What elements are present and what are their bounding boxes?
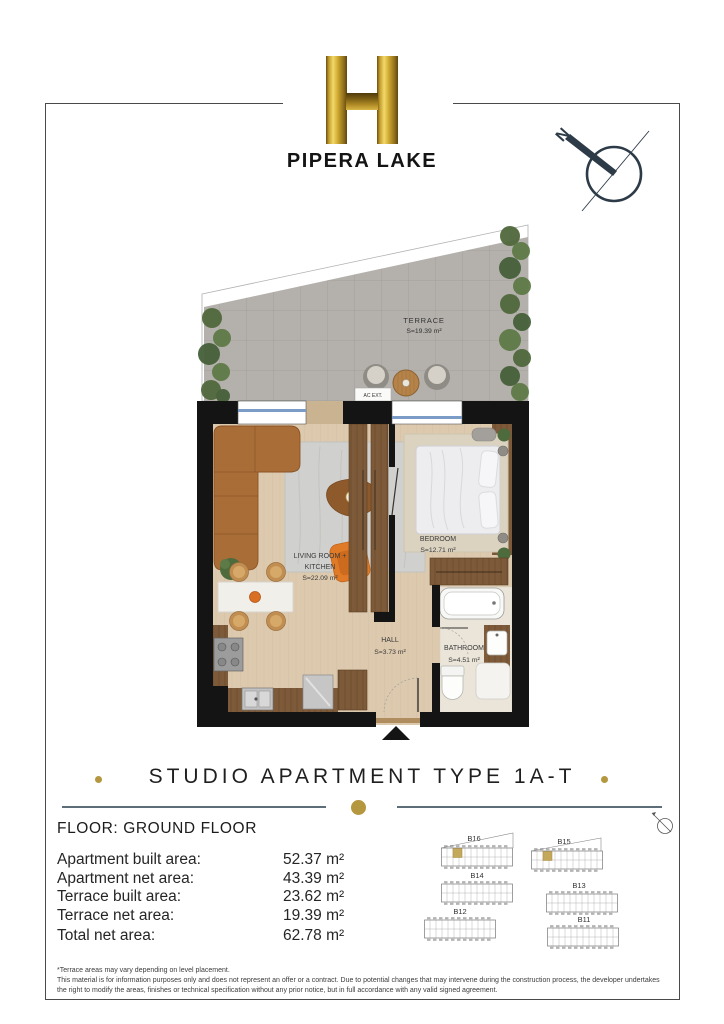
area-label: Total net area: bbox=[57, 927, 283, 946]
fridge bbox=[303, 675, 333, 709]
bedroom-pot bbox=[498, 533, 508, 543]
hall-label: HALL bbox=[381, 637, 399, 644]
window bbox=[238, 401, 306, 424]
area-row: Total net area: 62.78 m² bbox=[57, 927, 387, 946]
building-b15: B15 bbox=[531, 837, 603, 871]
compass-needle bbox=[565, 134, 617, 176]
area-row: Terrace net area: 19.39 m² bbox=[57, 907, 387, 926]
bedroom-pot bbox=[498, 446, 508, 456]
area-label: Apartment net area: bbox=[57, 870, 283, 889]
area-value: 62.78 m² bbox=[283, 927, 383, 946]
building-key-plans: B16 B15 B14 B13 B12 B11 bbox=[408, 800, 678, 960]
ac-exterior-unit: AC EXT. bbox=[355, 388, 391, 401]
bedroom-wardrobe bbox=[430, 558, 508, 585]
floor-plan: TERRACE S=19.39 m² AC EXT. bbox=[192, 220, 540, 742]
area-label: Terrace net area: bbox=[57, 907, 283, 926]
area-row: Apartment built area: 52.37 m² bbox=[57, 851, 387, 870]
title-dot-right bbox=[601, 776, 608, 783]
terrace-area: S=19.39 m² bbox=[406, 328, 442, 335]
disclaimer: *Terrace areas may vary depending on lev… bbox=[57, 966, 669, 996]
entrance-triangle-arrow-icon bbox=[382, 726, 410, 740]
building-b13: B13 bbox=[547, 881, 618, 914]
building-label: B12 bbox=[453, 907, 466, 916]
building-label: B13 bbox=[572, 881, 585, 890]
logo-right-bar bbox=[377, 56, 398, 144]
pillow bbox=[478, 450, 499, 488]
living-label-2: KITCHEN bbox=[305, 564, 336, 571]
building-b16: B16 bbox=[441, 833, 513, 868]
highlighted-unit bbox=[453, 849, 462, 858]
bedroom-plant bbox=[498, 429, 511, 442]
compass-rose-icon: N bbox=[552, 118, 667, 223]
ac-label: AC EXT. bbox=[364, 393, 383, 399]
window bbox=[392, 401, 462, 424]
floor-label: FLOOR: GROUND FLOOR bbox=[57, 820, 257, 838]
toilet bbox=[441, 666, 464, 700]
bedroom-bench bbox=[472, 428, 496, 441]
stove bbox=[214, 638, 243, 671]
area-value: 43.39 m² bbox=[283, 870, 383, 889]
shower-tray bbox=[476, 663, 510, 699]
bedroom-area: S=12.71 m² bbox=[420, 547, 456, 554]
disclaimer-line2: This material is for information purpose… bbox=[57, 976, 669, 996]
building-label: B16 bbox=[467, 834, 480, 843]
living-label-1: LIVING ROOM + bbox=[294, 553, 347, 560]
logo-left-bar bbox=[326, 56, 347, 144]
bed bbox=[416, 446, 500, 534]
bathtub bbox=[440, 588, 504, 619]
area-label: Terrace built area: bbox=[57, 888, 283, 907]
bathroom-label: BATHROOM bbox=[444, 645, 484, 652]
building-b12: B12 bbox=[425, 907, 496, 940]
area-table: Apartment built area: 52.37 m² Apartment… bbox=[57, 851, 387, 946]
bathroom-area: S=4.51 m² bbox=[448, 657, 480, 664]
living-area: S=22.09 m² bbox=[302, 575, 338, 582]
pillow bbox=[478, 491, 498, 528]
building-label: B11 bbox=[578, 915, 591, 924]
brand-logo-icon bbox=[326, 56, 398, 144]
terrace-label: TERRACE bbox=[403, 316, 444, 325]
terrace-table bbox=[393, 370, 419, 396]
terrace: TERRACE S=19.39 m² AC EXT. bbox=[198, 225, 531, 403]
kitchen-sink bbox=[242, 688, 273, 710]
disclaimer-line1: *Terrace areas may vary depending on lev… bbox=[57, 966, 669, 976]
terrace-chair bbox=[424, 364, 450, 390]
area-value: 52.37 m² bbox=[283, 851, 383, 870]
area-value: 23.62 m² bbox=[283, 888, 383, 907]
building-b11: B11 bbox=[548, 915, 619, 948]
entrance-threshold bbox=[376, 718, 420, 723]
logo-crossbar bbox=[346, 93, 378, 110]
small-compass-icon bbox=[652, 812, 673, 834]
area-row: Terrace built area: 23.62 m² bbox=[57, 888, 387, 907]
area-row: Apartment net area: 43.39 m² bbox=[57, 870, 387, 889]
divider-left bbox=[62, 806, 326, 808]
building-b14: B14 bbox=[442, 871, 513, 904]
terrace-chair bbox=[363, 364, 389, 390]
bathroom-sink bbox=[484, 625, 510, 669]
area-value: 19.39 m² bbox=[283, 907, 383, 926]
page-title: STUDIO APARTMENT TYPE 1A-T bbox=[62, 765, 662, 789]
hall-area: S=3.73 m² bbox=[374, 649, 406, 656]
highlighted-unit bbox=[543, 852, 552, 861]
area-label: Apartment built area: bbox=[57, 851, 283, 870]
hall-cabinet bbox=[338, 670, 367, 710]
table-centerpiece bbox=[250, 592, 261, 603]
divider-gold-dot bbox=[351, 800, 366, 815]
brand-name: PIPERA LAKE bbox=[212, 150, 512, 173]
bedroom-label: BEDROOM bbox=[420, 536, 456, 543]
building-label: B14 bbox=[470, 871, 483, 880]
